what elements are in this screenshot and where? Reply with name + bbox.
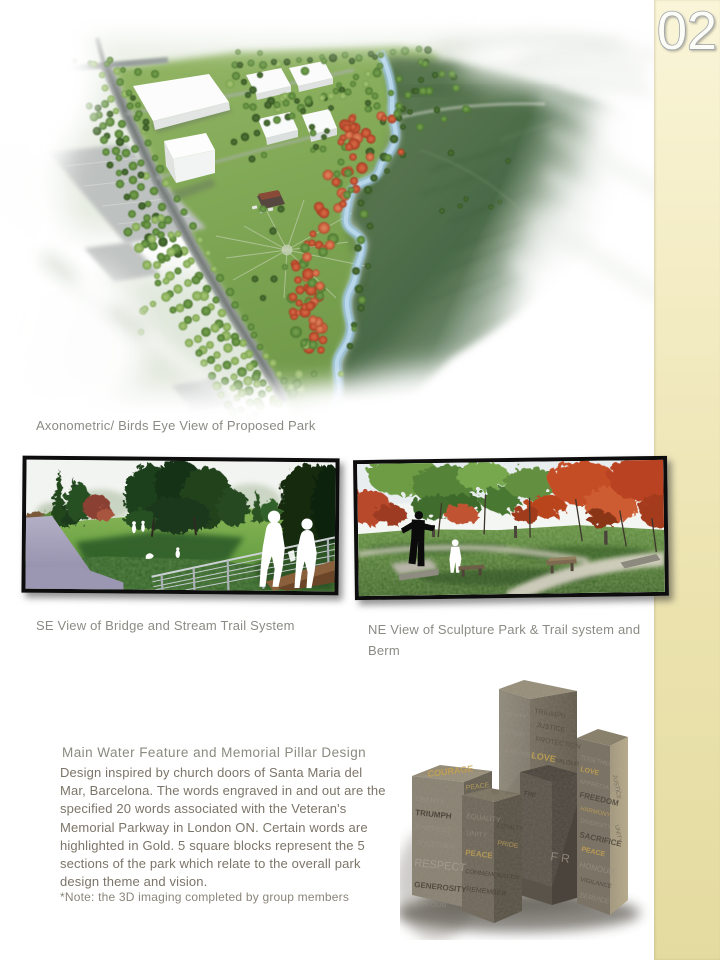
svg-text:02: 02 <box>657 1 717 61</box>
